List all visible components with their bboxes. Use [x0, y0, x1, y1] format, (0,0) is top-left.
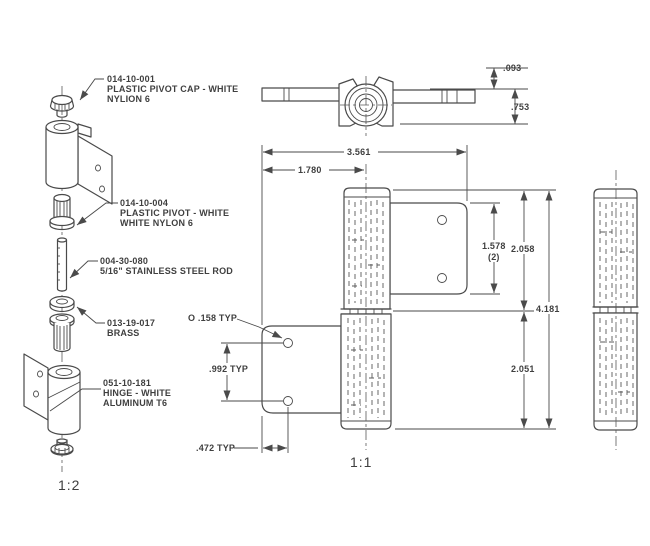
- upper-leaf-iso: [78, 136, 112, 204]
- left-leaf-edge: [262, 88, 340, 101]
- leader-line: [70, 261, 98, 278]
- callout-desc: 5/16" STAINLESS STEEL ROD: [100, 266, 233, 276]
- callout-desc: BRASS: [107, 328, 140, 338]
- barrel-body: [46, 127, 78, 189]
- dim-overall-height: 4.181: [536, 304, 560, 314]
- callout-part-number: 013-19-017: [107, 318, 155, 328]
- side-view: [593, 170, 638, 450]
- plastic-pivot-lower-part: [50, 314, 74, 352]
- callout-part-number: 051-10-181: [103, 378, 151, 388]
- upper-hinge-half-part: [46, 121, 112, 205]
- dim-hole-edge: .472 TYP: [196, 443, 235, 453]
- leader-line: [77, 203, 118, 225]
- barrel-lug: [78, 124, 91, 137]
- side-joint: [593, 307, 638, 313]
- callout-part-number: 014-10-001: [107, 74, 155, 84]
- upper-leaf: [390, 203, 467, 294]
- callout-part-number: 004-30-080: [100, 256, 148, 266]
- right-leaf-edge: [392, 90, 475, 103]
- callout-plastic-pivot: 014-10-004 PLASTIC PIVOT - WHITE WHITE N…: [77, 198, 229, 228]
- dim-hole-spacing: .992 TYP: [209, 364, 248, 374]
- callout-steel-rod: 004-30-080 5/16" STAINLESS STEEL ROD: [70, 256, 233, 278]
- engineering-drawing: 014-10-001 PLASTIC PIVOT CAP - WHITE NYL…: [0, 0, 650, 546]
- lower-leaf-iso: [24, 354, 48, 420]
- top-view: .093 .753: [262, 63, 529, 136]
- lower-hinge-half-part: [24, 354, 80, 435]
- front-view: [262, 164, 467, 450]
- steel-rod-part: [58, 238, 67, 291]
- dim-hole-dia: O .158 TYP: [188, 313, 237, 323]
- lower-leaf: [262, 326, 341, 413]
- dim-lower-half: 2.051: [511, 364, 535, 374]
- dim-left-to-center: 1.780: [298, 165, 322, 175]
- exploded-view: [24, 86, 112, 472]
- callout-desc: HINGE - WHITE: [103, 388, 171, 398]
- dim-overall-width: 3.561: [347, 147, 371, 157]
- callout-brass-washer: 013-19-017 BRASS: [77, 307, 155, 338]
- callout-part-number: 014-10-004: [120, 198, 168, 208]
- leader-line: [80, 79, 104, 100]
- callout-desc: ALUMINUM T6: [103, 398, 167, 408]
- plastic-pivot-upper-part: [50, 195, 74, 230]
- callout-desc: PLASTIC PIVOT CAP - WHITE: [107, 84, 238, 94]
- drawing-svg: 014-10-001 PLASTIC PIVOT CAP - WHITE NYL…: [0, 0, 650, 546]
- dim-top-height: .753: [511, 102, 529, 112]
- callout-pivot-cap: 014-10-001 PLASTIC PIVOT CAP - WHITE NYL…: [80, 74, 238, 104]
- callout-desc: NYLION 6: [107, 94, 150, 104]
- barrel-body: [48, 372, 80, 435]
- pivot-cap-bottom-part: [51, 439, 73, 455]
- scale-label-exploded: 1:2: [58, 477, 80, 493]
- dim-leaf-height: 1.578: [482, 241, 506, 251]
- leader-line: [77, 307, 105, 323]
- scale-label-front: 1:1: [350, 454, 372, 470]
- callout-desc: WHITE NYLON 6: [120, 218, 193, 228]
- dim-offset: .093: [503, 63, 521, 73]
- dim-leaf-qty: (2): [488, 252, 500, 262]
- dim-upper-half: 2.058: [511, 244, 535, 254]
- callout-desc: PLASTIC PIVOT - WHITE: [120, 208, 229, 218]
